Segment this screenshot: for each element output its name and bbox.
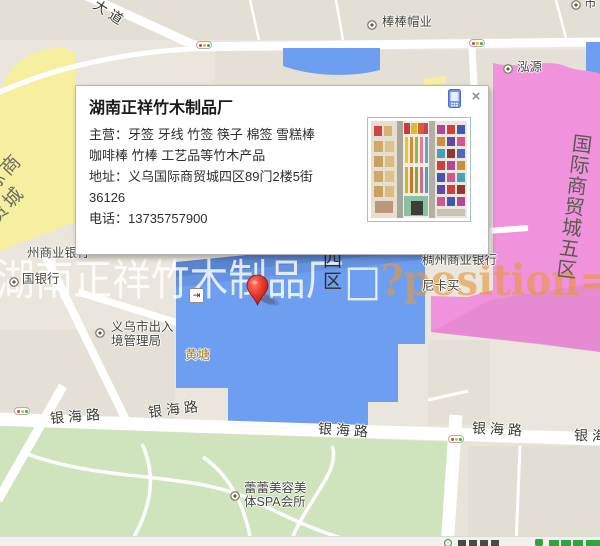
map-labels-layer: 四区 国际商贸城五区 国际商贸城 ⇥ 大道银海路银海路银海路银海路银海路棒棒帽业…	[0, 0, 600, 545]
poi-label: 义乌市出入	[111, 320, 174, 334]
close-icon[interactable]: ×	[468, 89, 484, 105]
business-title: 湖南正祥竹木制品厂	[89, 94, 233, 118]
traffic-light-icon	[469, 39, 485, 47]
poi-icon	[9, 277, 19, 287]
road-label: 大道	[89, 0, 130, 31]
road-label: 银海路	[317, 418, 372, 442]
poi-label: 泓源	[517, 60, 542, 74]
poi-label: 稠州商业银行	[422, 253, 497, 267]
footer-text-fragment[interactable]	[586, 540, 600, 546]
poi-icon	[367, 20, 377, 30]
business-line: 主营：牙签 牙线 竹签 筷子 棉签 雪糕棒	[89, 124, 367, 145]
map-marker-pin[interactable]	[246, 274, 269, 311]
footer-text-fragment[interactable]	[549, 540, 559, 546]
poi-label: 黄塘	[185, 348, 210, 362]
mobile-phone-icon[interactable]	[448, 89, 463, 109]
business-line: 电话：13735757900	[89, 208, 367, 229]
business-details: 主营：牙签 牙线 竹签 筷子 棉签 雪糕棒 咖啡棒 竹棒 工艺品等竹木产品 地址…	[89, 124, 367, 229]
footer-text-fragment[interactable]	[561, 540, 571, 546]
poi-icon	[230, 491, 240, 501]
business-line: 咖啡棒 竹棒 工艺品等竹木产品	[89, 145, 367, 166]
footer-text-fragment[interactable]	[491, 540, 499, 546]
traffic-light-icon	[448, 435, 464, 443]
poi-label: 国银行	[22, 272, 60, 286]
poi-label: 蕾蕾美容美	[244, 481, 307, 495]
poi-label: 尼卡买	[422, 279, 460, 293]
district-label-4: 四区	[317, 250, 344, 292]
road-label: 银海路	[147, 396, 203, 422]
business-line: 地址：义乌国际商贸城四区89门2楼5街	[89, 166, 367, 187]
poi-label: 棒棒帽业	[382, 15, 432, 29]
traffic-light-icon	[14, 407, 30, 415]
info-window: 湖南正祥竹木制品厂 主营：牙签 牙线 竹签 筷子 棉签 雪糕棒 咖啡棒 竹棒 工…	[75, 85, 489, 255]
poi-icon	[95, 328, 105, 338]
map-canvas[interactable]: { "app": {"type": "map-infowindow-screen…	[0, 0, 600, 545]
road-label: 银海路	[472, 418, 527, 441]
entrance-arrow-icon: ⇥	[189, 288, 204, 303]
footer-text-fragment[interactable]	[458, 540, 466, 546]
poi-label: 境管理局	[111, 334, 161, 348]
poi-icon	[503, 64, 513, 74]
footer-text-fragment[interactable]	[480, 540, 488, 546]
poi-label: 市	[584, 0, 597, 10]
poi-label: 体SPA会所	[244, 495, 306, 509]
poi-icon	[571, 0, 581, 10]
road-label: 银海路	[49, 404, 105, 429]
district-label-yellow: 国际商贸城	[0, 134, 60, 230]
footer-text-fragment[interactable]	[469, 540, 477, 546]
business-line: 36126	[89, 187, 367, 208]
district-label-5: 国际商贸城五区	[549, 132, 596, 281]
footer-text-fragment[interactable]	[573, 540, 583, 546]
traffic-light-icon	[196, 41, 212, 49]
storefront-photo[interactable]	[367, 117, 471, 222]
road-label: 银海路	[574, 425, 600, 447]
